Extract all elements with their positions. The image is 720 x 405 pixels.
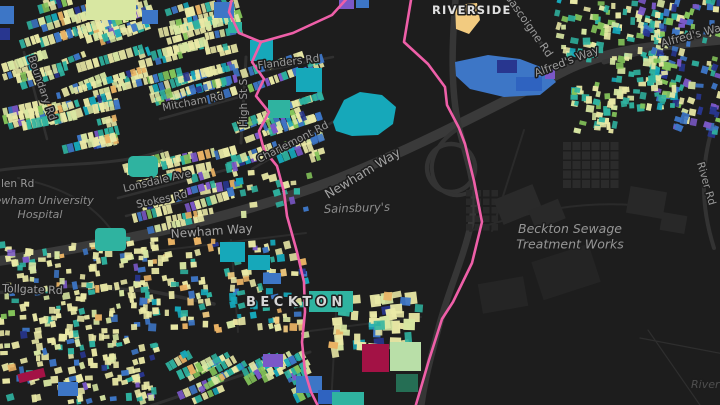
building (190, 262, 197, 268)
building (690, 118, 698, 126)
building (29, 266, 36, 274)
landmark-building (142, 10, 158, 24)
building (654, 58, 661, 62)
map-label-sainsburys: Sainsbury's (324, 200, 391, 216)
landmark-building (86, 0, 136, 20)
building (152, 259, 157, 264)
building (181, 310, 188, 316)
building (95, 270, 100, 276)
building (150, 237, 158, 242)
building (50, 321, 56, 328)
landmark-building (396, 374, 418, 392)
building (574, 87, 580, 93)
building (171, 324, 178, 329)
building (143, 311, 149, 319)
building (607, 101, 614, 109)
building (659, 23, 664, 29)
building (22, 256, 29, 263)
building (203, 321, 209, 328)
building (215, 327, 222, 333)
building (0, 330, 4, 336)
building (248, 170, 255, 176)
building (129, 286, 134, 292)
building (131, 324, 137, 330)
building (669, 92, 675, 98)
building (707, 61, 712, 66)
landmark-building (0, 6, 14, 24)
building (134, 248, 142, 253)
building (25, 248, 32, 256)
building (654, 39, 659, 44)
building (73, 330, 79, 337)
building (140, 286, 148, 292)
building (180, 262, 187, 270)
building (54, 270, 59, 278)
building (43, 379, 52, 387)
building (639, 92, 646, 100)
building (148, 260, 153, 267)
map-label-beckton-sewage-works: Beckton SewageTreatment Works (516, 221, 624, 252)
building (140, 307, 145, 313)
building (383, 292, 392, 301)
building (656, 80, 663, 85)
building (59, 254, 64, 259)
landmark-building (248, 255, 270, 270)
building (102, 335, 110, 339)
building (124, 252, 132, 259)
building (340, 324, 347, 331)
building (241, 211, 247, 218)
building (61, 301, 66, 306)
building (249, 202, 257, 208)
building (85, 375, 93, 380)
building (80, 274, 85, 280)
treatment-tank (483, 190, 490, 197)
building (158, 255, 165, 260)
building (188, 291, 195, 299)
building (581, 29, 587, 35)
building (248, 240, 256, 247)
building (270, 240, 275, 246)
building (201, 289, 208, 295)
treatment-tank (563, 152, 571, 160)
landmark-building (362, 344, 389, 372)
building (68, 246, 75, 252)
building (661, 71, 668, 76)
building (672, 85, 677, 93)
building (608, 129, 613, 134)
building (229, 293, 236, 301)
treatment-tank (582, 180, 590, 188)
building (30, 277, 35, 282)
building (88, 265, 95, 272)
building (151, 268, 159, 274)
treatment-tank (466, 190, 473, 197)
building (112, 378, 118, 386)
building (36, 355, 40, 361)
building (119, 263, 124, 268)
building (706, 0, 711, 4)
building (352, 295, 361, 304)
building (236, 177, 244, 185)
treatment-tank (611, 152, 619, 160)
building (647, 80, 654, 86)
map-label-len-rd: len Rd (1, 178, 34, 190)
building (62, 292, 71, 300)
building (1, 314, 7, 320)
building (211, 239, 216, 244)
building (0, 241, 6, 249)
building (169, 291, 175, 299)
treatment-tank (592, 171, 600, 179)
building (243, 276, 250, 282)
landmark-building (356, 0, 369, 8)
building (651, 63, 656, 70)
treatment-tank (492, 190, 499, 197)
building (716, 0, 720, 6)
building (604, 93, 610, 99)
building (0, 351, 8, 355)
landmark-building (497, 60, 517, 73)
building (140, 298, 147, 304)
building (109, 310, 114, 316)
building (612, 112, 617, 118)
building (611, 3, 615, 9)
treatment-tank (573, 152, 581, 160)
building (614, 89, 622, 96)
building (370, 294, 382, 307)
building (594, 125, 601, 130)
building (180, 270, 188, 274)
building (655, 67, 660, 75)
building (655, 12, 661, 19)
building (68, 366, 77, 375)
building (113, 334, 120, 341)
treatment-tank (466, 199, 473, 206)
building (616, 62, 624, 69)
building (165, 310, 169, 316)
map-label-river: River (691, 378, 720, 391)
building (592, 86, 598, 92)
map-label-riverside: RIVERSIDE (432, 3, 512, 17)
building (244, 270, 252, 275)
building (68, 348, 74, 354)
building (604, 25, 611, 33)
building (152, 307, 159, 314)
building (695, 83, 703, 88)
building (328, 341, 338, 349)
building (616, 76, 622, 83)
building (175, 306, 181, 311)
building (369, 311, 377, 317)
building (332, 317, 343, 326)
building (80, 293, 86, 299)
building (106, 317, 112, 324)
building (95, 285, 99, 293)
landmark-building (263, 354, 283, 367)
building (638, 82, 646, 87)
treatment-tank (466, 207, 473, 214)
treatment-tank (611, 161, 619, 169)
map-canvas[interactable]: RIVERSIDEGascoigne RdAlfred's WayAlfred'… (0, 0, 720, 405)
building (651, 85, 658, 92)
building (148, 394, 154, 401)
treatment-tank (563, 142, 571, 150)
building (113, 329, 119, 334)
building (415, 304, 424, 312)
building (96, 257, 101, 264)
building (95, 314, 102, 320)
building (141, 384, 146, 390)
building (86, 283, 93, 289)
building (133, 282, 138, 287)
building (294, 312, 302, 317)
landmark-building (220, 242, 245, 262)
building (643, 58, 652, 67)
building (688, 81, 696, 89)
building (570, 0, 578, 4)
treatment-tank (573, 161, 581, 169)
building (202, 311, 209, 317)
building (230, 285, 235, 292)
building (191, 276, 198, 282)
building (38, 257, 46, 262)
building (49, 307, 55, 314)
building (622, 97, 629, 104)
building (22, 275, 29, 282)
building (74, 359, 80, 365)
building (7, 250, 15, 256)
building (199, 280, 206, 285)
building (633, 89, 640, 94)
building (351, 311, 359, 321)
landmark-building (268, 100, 290, 118)
building (713, 6, 719, 12)
building (624, 56, 629, 61)
building (666, 18, 674, 26)
building (91, 335, 96, 341)
building (592, 113, 596, 120)
treatment-tank (573, 142, 581, 150)
building (198, 299, 204, 304)
treatment-tank (573, 180, 581, 188)
building (290, 181, 296, 186)
building (20, 331, 28, 339)
building (11, 259, 17, 266)
building (66, 324, 73, 331)
treatment-tank (483, 224, 490, 231)
building (50, 376, 58, 384)
building (101, 365, 107, 371)
building (49, 359, 57, 367)
building (4, 343, 10, 348)
building (615, 12, 621, 18)
building (119, 290, 124, 297)
treatment-tank (582, 161, 590, 169)
building (19, 262, 26, 267)
landmark-building (95, 228, 126, 251)
building (51, 315, 57, 320)
building (157, 298, 161, 305)
building (692, 4, 699, 9)
building (131, 302, 137, 308)
treatment-tank (483, 207, 490, 214)
building (599, 117, 606, 123)
building (237, 314, 241, 318)
landmark-building (0, 28, 10, 40)
treatment-tank (466, 224, 473, 231)
building (291, 271, 298, 276)
building (354, 334, 360, 345)
treatment-tank (601, 171, 609, 179)
building (283, 317, 290, 322)
treatment-tank (592, 152, 600, 160)
building (145, 318, 151, 325)
building (629, 102, 634, 108)
building (5, 330, 10, 335)
building (280, 269, 287, 277)
treatment-tank (592, 161, 600, 169)
treatment-tank (563, 180, 571, 188)
building (70, 307, 77, 315)
landmark-building (390, 342, 421, 371)
building (101, 328, 107, 333)
treatment-tank (592, 180, 600, 188)
building (109, 353, 114, 360)
building (275, 317, 279, 324)
treatment-tank (611, 171, 619, 179)
building (266, 288, 273, 294)
building (637, 77, 644, 82)
building (678, 23, 685, 27)
building (88, 358, 94, 366)
building (593, 14, 599, 20)
treatment-tank (492, 216, 499, 223)
treatment-tank (601, 142, 609, 150)
building (24, 302, 29, 307)
building (59, 334, 67, 341)
building (31, 394, 37, 402)
landmark-building (296, 68, 322, 92)
treatment-tank (611, 142, 619, 150)
building (633, 70, 640, 76)
treatment-tank (563, 171, 571, 179)
building (2, 378, 10, 384)
building (670, 103, 675, 108)
building (54, 251, 59, 259)
building (121, 370, 129, 376)
building (586, 105, 595, 113)
building (84, 315, 90, 320)
building (89, 341, 95, 348)
landmark-building (58, 382, 78, 396)
building (185, 212, 192, 219)
building (586, 96, 592, 104)
building (374, 320, 385, 330)
building (257, 323, 263, 330)
building (151, 387, 157, 395)
building (77, 315, 85, 321)
building (604, 32, 611, 39)
building (696, 94, 701, 100)
building (276, 254, 285, 262)
treatment-tank (592, 142, 600, 150)
building (231, 277, 237, 283)
landmark-building (332, 392, 364, 405)
treatment-tank (466, 216, 473, 223)
map-label-high-st-s: High St S (238, 78, 250, 127)
landmark-building (128, 156, 158, 177)
treatment-tank (601, 180, 609, 188)
building (101, 256, 107, 265)
building (618, 39, 624, 46)
map-label-tollgate-rd: Tollgate Rd (1, 282, 63, 297)
building (403, 319, 415, 331)
building (570, 95, 577, 100)
building (171, 282, 179, 287)
map-viewport[interactable]: RIVERSIDEGascoigne RdAlfred's WayAlfred'… (0, 0, 720, 405)
building (638, 47, 643, 54)
building (110, 396, 117, 401)
treatment-tank (601, 152, 609, 160)
treatment-tank (483, 216, 490, 223)
building (8, 310, 15, 316)
building (623, 9, 628, 16)
building (689, 108, 697, 116)
building (145, 292, 150, 299)
building (233, 319, 240, 325)
treatment-tank (582, 171, 590, 179)
building (610, 58, 616, 65)
building (658, 95, 666, 102)
building (640, 103, 645, 109)
building (392, 311, 404, 318)
building (66, 269, 71, 274)
building (612, 27, 621, 34)
building (583, 38, 591, 45)
building (236, 279, 243, 286)
building (630, 17, 635, 25)
building (135, 275, 141, 282)
treatment-tank (611, 180, 619, 188)
building (100, 283, 109, 292)
building (186, 252, 193, 258)
building (11, 298, 18, 303)
landmark-building (263, 273, 281, 284)
treatment-tank (563, 161, 571, 169)
building (268, 318, 274, 323)
building (182, 323, 188, 329)
building (598, 1, 605, 5)
building (283, 325, 287, 332)
building (636, 17, 641, 22)
treatment-tank (483, 199, 490, 206)
building (126, 393, 132, 401)
building (188, 320, 195, 326)
building (36, 343, 43, 351)
treatment-tank (601, 161, 609, 169)
treatment-tank (582, 142, 590, 150)
map-label-beckton: BECKTON (246, 295, 347, 310)
building (20, 315, 27, 320)
building (143, 250, 149, 258)
building (250, 311, 257, 318)
building (289, 323, 297, 331)
building (652, 2, 657, 9)
building (404, 332, 412, 343)
building (561, 25, 566, 30)
building (139, 256, 144, 261)
